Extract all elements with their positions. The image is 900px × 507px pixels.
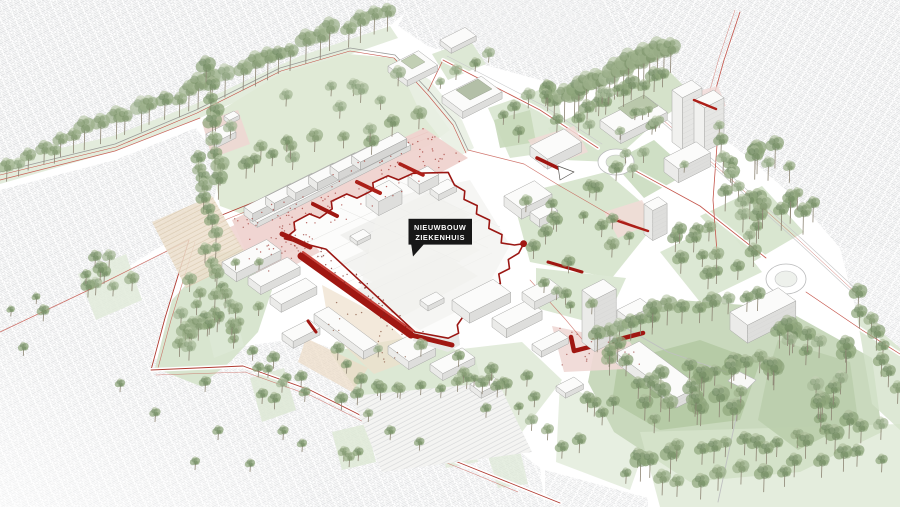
svg-text:ZIEKENHUIS: ZIEKENHUIS	[415, 233, 465, 242]
svg-text:NIEUWBOUW: NIEUWBOUW	[414, 223, 466, 232]
